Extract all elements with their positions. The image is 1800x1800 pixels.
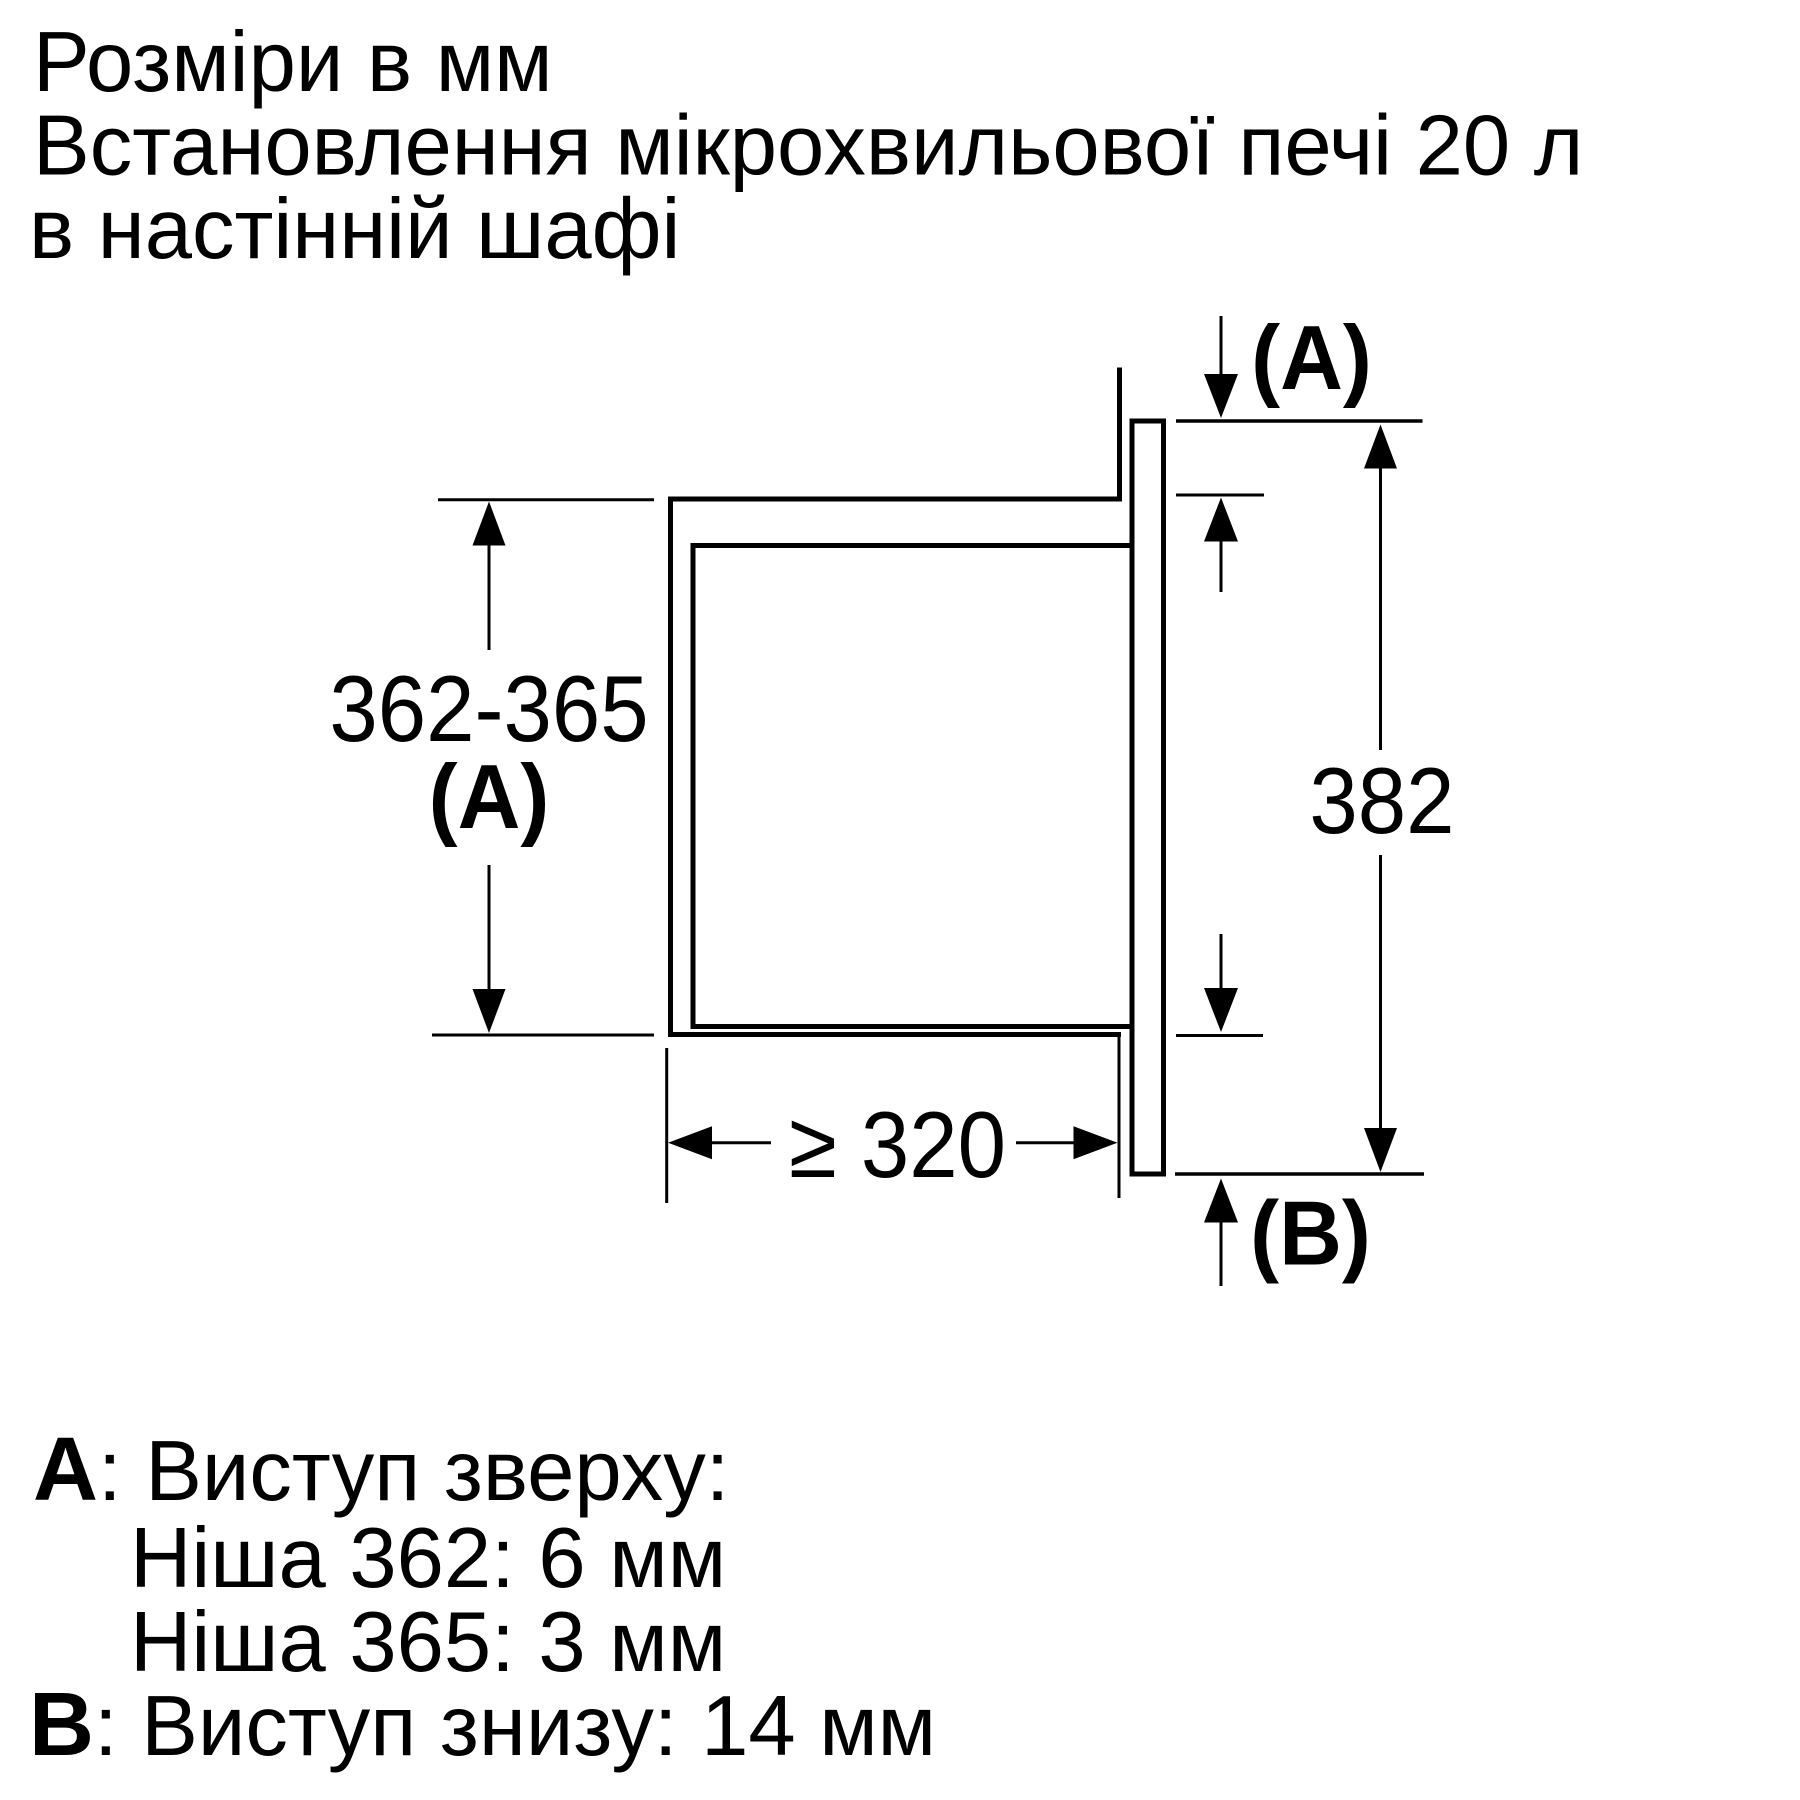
svg-text:(A): (A)	[1251, 307, 1372, 408]
svg-text:(B): (B)	[1250, 1183, 1371, 1284]
svg-text:≥ 320: ≥ 320	[789, 1093, 1006, 1198]
svg-text:Ніша 365: 3 мм: Ніша 365: 3 мм	[130, 1595, 726, 1690]
svg-text:В: Виступ знизу: 14 мм: В: Виступ знизу: 14 мм	[29, 1675, 936, 1775]
svg-text:в настінній шафі: в настінній шафі	[29, 182, 680, 277]
svg-text:Ніша 362: 6 мм: Ніша 362: 6 мм	[130, 1511, 726, 1606]
svg-text:382: 382	[1309, 749, 1454, 854]
svg-text:Встановлення мікрохвильової пе: Встановлення мікрохвильової печі 20 л	[33, 99, 1583, 194]
svg-text:(А): (А)	[429, 746, 550, 847]
svg-text:А: Виступ зверху:: А: Виступ зверху:	[33, 1420, 729, 1520]
svg-text:Розміри в мм: Розміри в мм	[33, 15, 553, 110]
